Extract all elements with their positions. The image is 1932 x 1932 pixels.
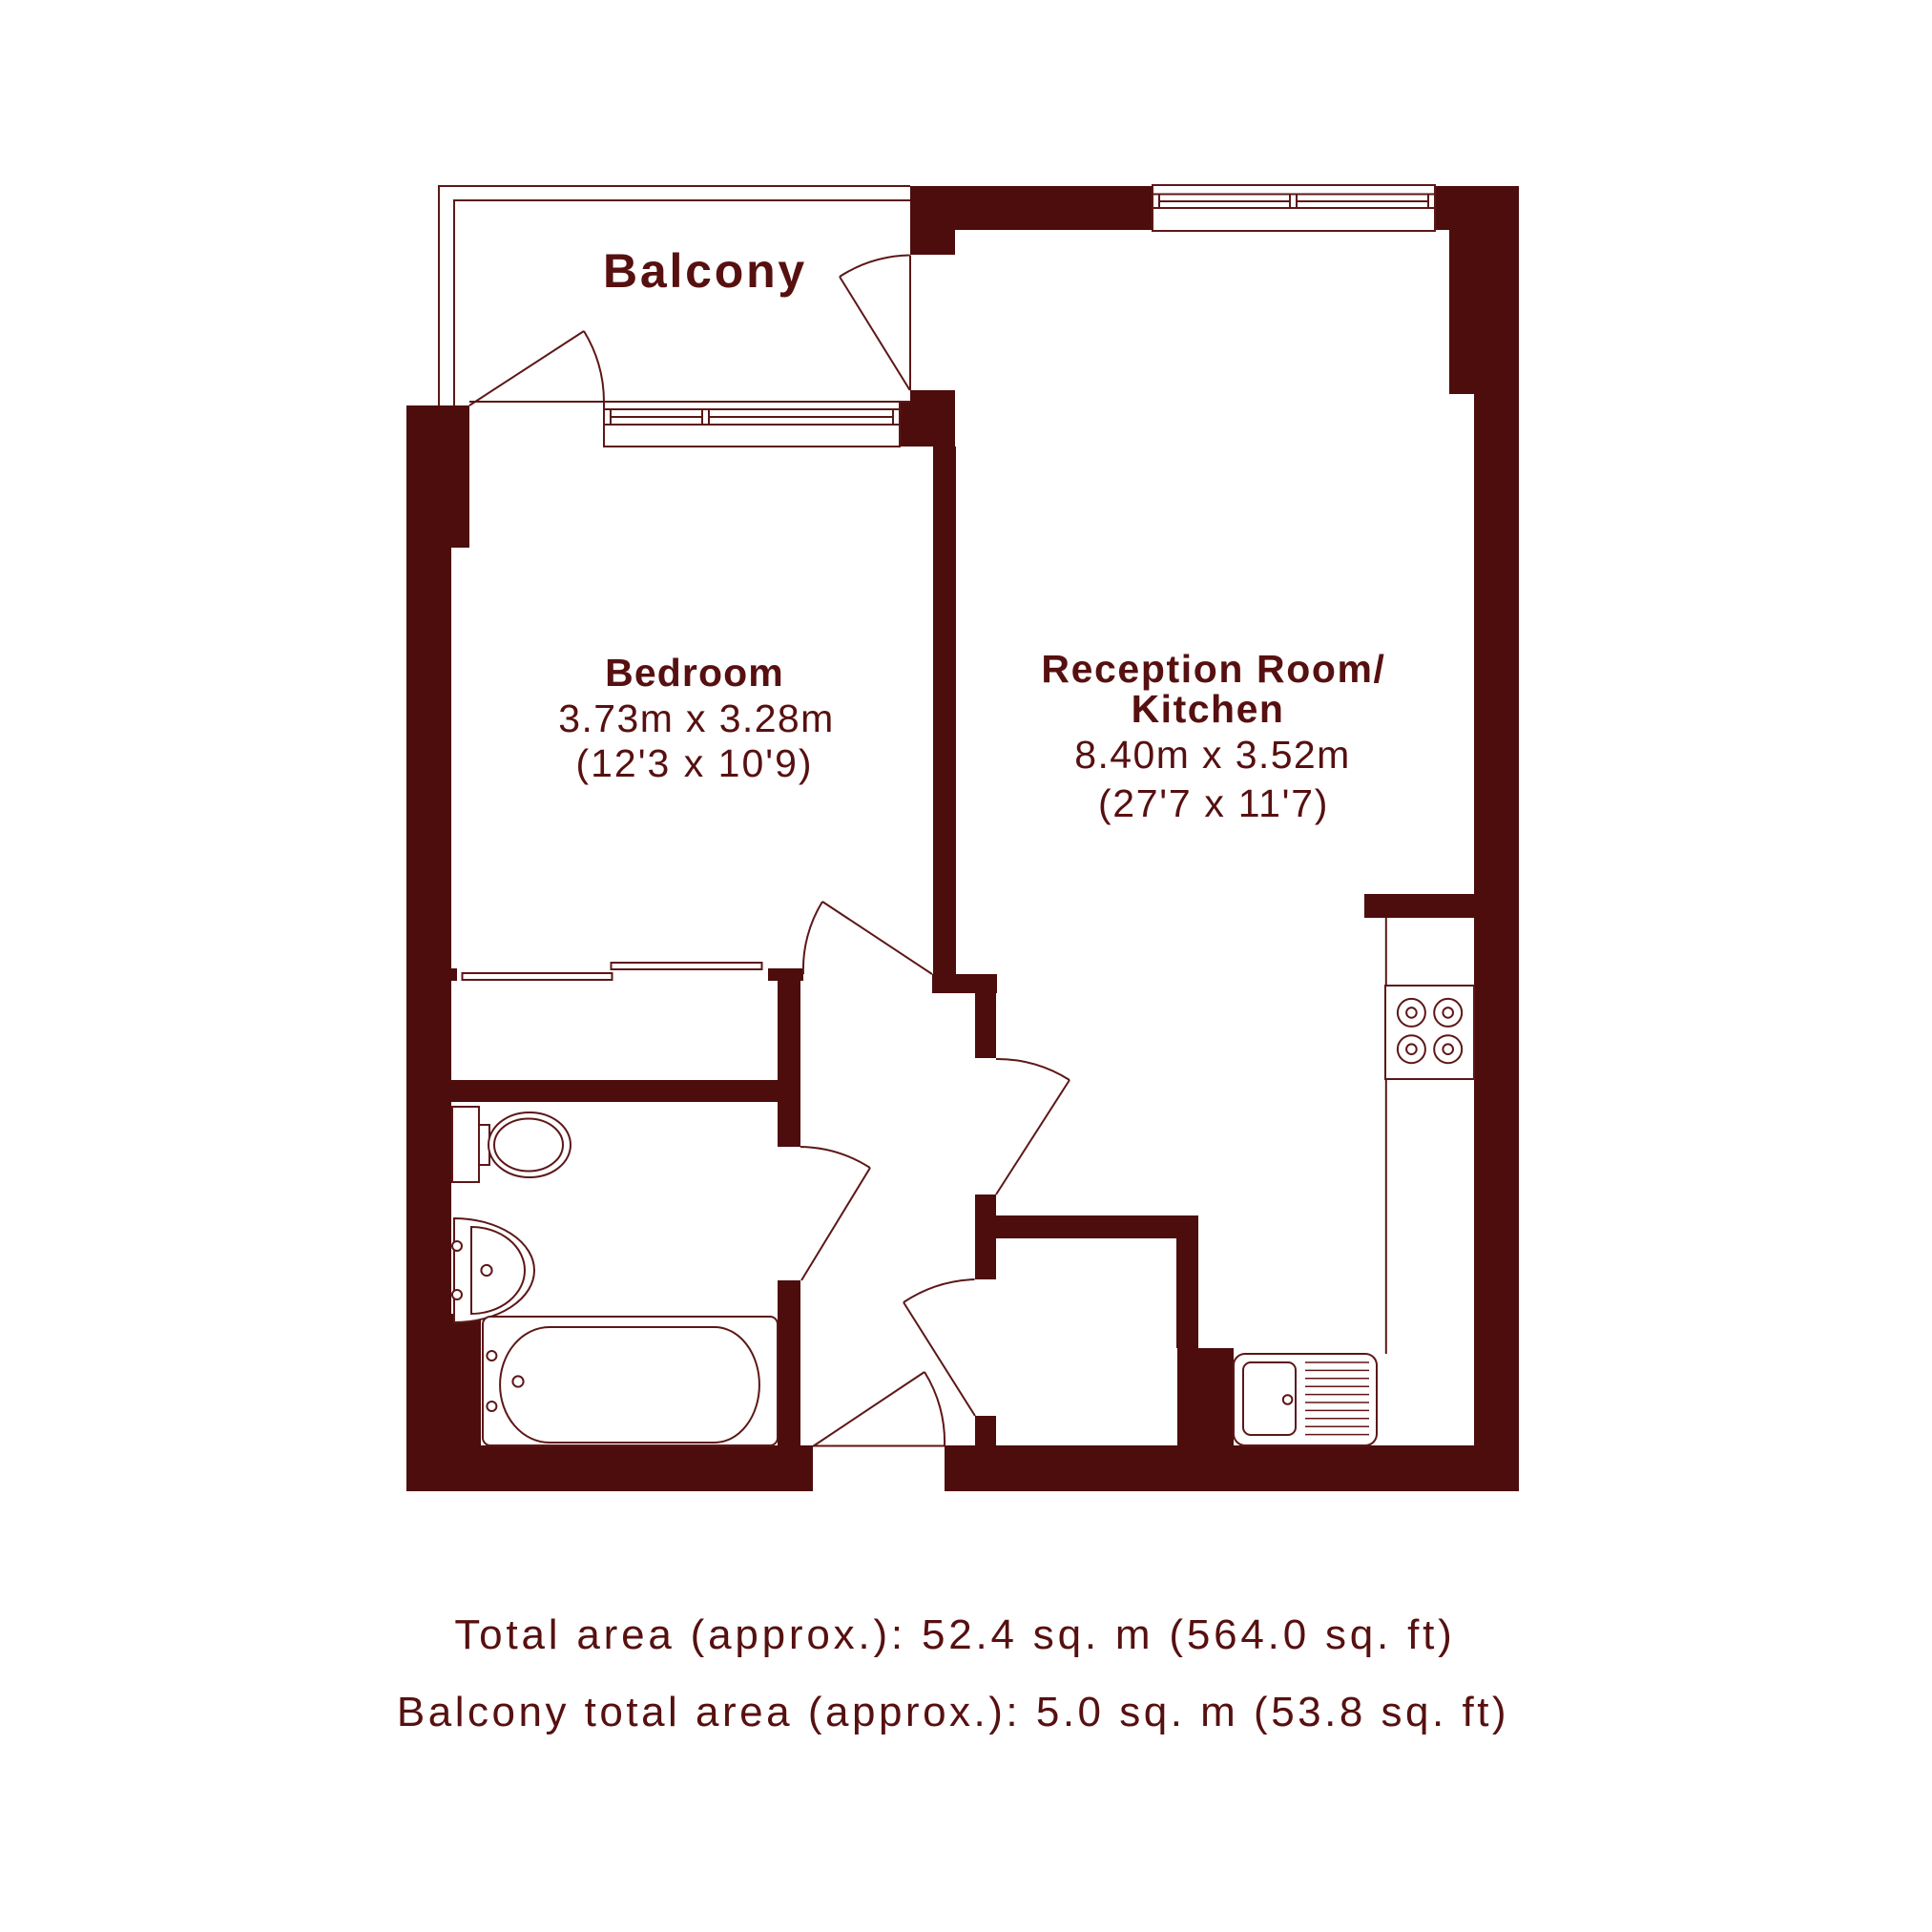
svg-text:Balcony total area (approx.):: Balcony total area (approx.): 5.0 sq. m … (397, 1689, 1509, 1735)
svg-text:Balcony: Balcony (603, 244, 807, 298)
svg-text:(27'7 x 11'7): (27'7 x 11'7) (1098, 781, 1329, 825)
svg-text:8.40m x 3.52m: 8.40m x 3.52m (1074, 733, 1350, 777)
svg-text:Reception Room/: Reception Room/ (1041, 647, 1385, 691)
svg-text:3.73m x 3.28m: 3.73m x 3.28m (558, 696, 834, 740)
svg-text:Total area (approx.): 52.4 sq.: Total area (approx.): 52.4 sq. m (564.0 … (454, 1611, 1455, 1658)
svg-text:(12'3 x 10'9): (12'3 x 10'9) (575, 741, 813, 785)
svg-text:Bedroom: Bedroom (605, 651, 784, 695)
svg-text:Kitchen: Kitchen (1132, 687, 1285, 731)
